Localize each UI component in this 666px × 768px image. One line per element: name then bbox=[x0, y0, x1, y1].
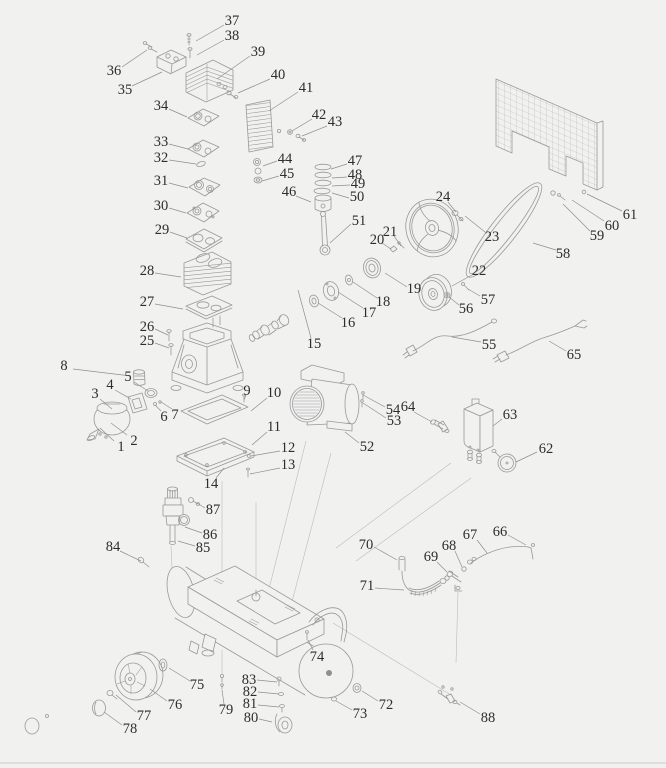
leader-line-18 bbox=[353, 282, 377, 298]
part-label-79: 79 bbox=[219, 702, 234, 718]
leader-line-10 bbox=[251, 398, 267, 411]
leader-line-23 bbox=[465, 216, 485, 232]
platform-bolts bbox=[220, 674, 223, 689]
leader-line-53 bbox=[363, 403, 386, 418]
leader-line-38 bbox=[197, 40, 224, 55]
part-label-37: 37 bbox=[225, 13, 240, 29]
leader-line-83 bbox=[257, 680, 277, 682]
leader-line-15 bbox=[298, 290, 311, 338]
part-label-34: 34 bbox=[154, 98, 169, 114]
leader-line-45 bbox=[262, 176, 279, 181]
part-label-43: 43 bbox=[328, 114, 343, 130]
part-label-54: 54 bbox=[386, 402, 401, 418]
part-label-9: 9 bbox=[243, 383, 250, 399]
unloader-screws bbox=[143, 42, 157, 52]
leader-line-81 bbox=[258, 705, 279, 707]
finned-aftercooler bbox=[244, 100, 281, 152]
part-label-23: 23 bbox=[485, 229, 500, 245]
leader-line-56 bbox=[449, 297, 459, 305]
part-label-38: 38 bbox=[225, 28, 240, 44]
part-label-11: 11 bbox=[267, 419, 281, 435]
valve-plate-d bbox=[187, 203, 219, 222]
leader-line-86 bbox=[185, 527, 202, 533]
leader-line-47 bbox=[331, 164, 347, 169]
leader-line-37 bbox=[196, 25, 224, 41]
axle-bolt bbox=[107, 691, 117, 700]
crankcase bbox=[171, 316, 243, 393]
crankcase-gasket bbox=[181, 395, 248, 424]
leader-line-88 bbox=[460, 702, 480, 714]
part-label-21: 21 bbox=[383, 224, 398, 240]
leader-line-4 bbox=[115, 390, 131, 399]
part-label-84: 84 bbox=[106, 539, 121, 555]
part-label-16: 16 bbox=[341, 315, 356, 331]
part-label-4: 4 bbox=[106, 377, 114, 393]
cylinder-gasket bbox=[186, 296, 232, 319]
leader-line-28 bbox=[155, 273, 181, 277]
part-label-87: 87 bbox=[206, 502, 221, 518]
valve-plate-c bbox=[189, 178, 220, 196]
part-label-78: 78 bbox=[123, 721, 138, 737]
base-plate bbox=[177, 438, 254, 476]
part-label-1: 1 bbox=[117, 439, 124, 455]
leader-line-44 bbox=[263, 161, 277, 166]
leader-line-40 bbox=[238, 79, 270, 93]
leader-line-34 bbox=[169, 109, 187, 117]
part-label-15: 15 bbox=[307, 336, 322, 352]
leader-line-84 bbox=[120, 551, 141, 561]
leader-line-66 bbox=[508, 535, 526, 545]
crankshaft bbox=[248, 313, 290, 342]
bearing-flange bbox=[321, 280, 340, 302]
leader-line-49 bbox=[332, 185, 350, 186]
part-label-60: 60 bbox=[605, 218, 620, 234]
part-label-80: 80 bbox=[244, 710, 259, 726]
leader-line-71 bbox=[375, 588, 404, 590]
leader-line-5 bbox=[134, 382, 148, 391]
switch-nipple bbox=[430, 419, 449, 432]
part-label-13: 13 bbox=[281, 457, 296, 473]
leader-line-46 bbox=[296, 196, 311, 202]
part-label-77: 77 bbox=[137, 708, 152, 724]
pressure-gauge bbox=[492, 450, 516, 473]
leader-line-64 bbox=[414, 412, 432, 422]
reed-valve bbox=[196, 160, 206, 167]
construction-line-7 bbox=[288, 453, 331, 617]
part-label-29: 29 bbox=[155, 222, 170, 238]
part-label-26: 26 bbox=[140, 319, 155, 335]
part-label-66: 66 bbox=[493, 524, 508, 540]
part-label-62: 62 bbox=[539, 441, 554, 457]
leader-line-73 bbox=[336, 701, 352, 710]
part-label-3: 3 bbox=[91, 386, 98, 402]
leader-line-17 bbox=[338, 292, 363, 308]
leader-line-52 bbox=[345, 432, 359, 443]
part-label-67: 67 bbox=[463, 527, 478, 543]
part-label-70: 70 bbox=[359, 537, 374, 553]
part-label-51: 51 bbox=[352, 213, 367, 229]
part-label-42: 42 bbox=[312, 107, 327, 123]
leader-line-27 bbox=[155, 304, 183, 309]
valve-plate-b bbox=[188, 140, 219, 157]
leader-line-13 bbox=[250, 468, 280, 474]
leader-line-19 bbox=[385, 273, 407, 287]
leader-line-67 bbox=[477, 540, 487, 553]
leader-line-58 bbox=[533, 243, 556, 250]
leader-line-65 bbox=[549, 341, 566, 351]
valve-plate-a bbox=[188, 109, 219, 126]
leader-line-70 bbox=[374, 547, 397, 560]
leader-line-69 bbox=[437, 562, 447, 572]
cylinder-head bbox=[184, 60, 235, 102]
part-label-88: 88 bbox=[481, 710, 496, 726]
leader-line-41 bbox=[269, 92, 298, 111]
construction-line-2 bbox=[333, 623, 451, 695]
leader-line-36 bbox=[122, 50, 147, 67]
part-label-72: 72 bbox=[379, 697, 394, 713]
flywheel bbox=[399, 193, 464, 262]
part-label-74: 74 bbox=[310, 649, 325, 665]
part-label-59: 59 bbox=[590, 228, 605, 244]
crankcase-screws bbox=[167, 330, 173, 355]
part-label-7: 7 bbox=[171, 407, 178, 423]
compression-fittings bbox=[254, 159, 263, 184]
part-label-18: 18 bbox=[376, 294, 391, 310]
end-cap bbox=[25, 715, 49, 735]
leader-line-48 bbox=[332, 177, 347, 178]
exploded-parts-diagram: 1234567891011121314151617181920212223242… bbox=[0, 0, 666, 768]
leader-line-55 bbox=[452, 337, 481, 342]
part-label-40: 40 bbox=[271, 67, 286, 83]
leader-line-63 bbox=[493, 419, 502, 426]
part-label-12: 12 bbox=[281, 440, 296, 456]
hub-cap bbox=[93, 700, 106, 716]
intake-screws bbox=[154, 401, 162, 406]
leader-line-51 bbox=[330, 224, 351, 243]
construction-line-8 bbox=[171, 546, 172, 569]
part-label-75: 75 bbox=[190, 677, 205, 693]
part-label-19: 19 bbox=[407, 281, 422, 297]
connecting-rod bbox=[320, 212, 330, 256]
part-label-83: 83 bbox=[242, 672, 257, 688]
part-label-35: 35 bbox=[118, 82, 133, 98]
part-label-57: 57 bbox=[481, 292, 496, 308]
leader-line-57 bbox=[468, 289, 480, 296]
part-label-28: 28 bbox=[140, 263, 155, 279]
leader-line-42 bbox=[292, 119, 312, 131]
pressure-switch bbox=[464, 399, 493, 464]
part-label-33: 33 bbox=[154, 134, 169, 150]
outlet-pipe bbox=[468, 544, 535, 565]
piston bbox=[315, 195, 331, 212]
head-screws bbox=[187, 34, 192, 58]
part-label-17: 17 bbox=[362, 305, 377, 321]
leader-line-78 bbox=[104, 712, 122, 725]
part-label-41: 41 bbox=[299, 80, 314, 96]
leader-line-62 bbox=[516, 452, 537, 462]
part-label-27: 27 bbox=[140, 294, 155, 310]
part-label-68: 68 bbox=[442, 538, 457, 554]
part-label-64: 64 bbox=[401, 399, 416, 415]
belt-guard-screws bbox=[551, 190, 586, 200]
head-gasket bbox=[186, 229, 222, 252]
leader-line-33 bbox=[169, 144, 188, 149]
part-label-8: 8 bbox=[60, 358, 67, 374]
unloader-valve-block bbox=[157, 50, 186, 74]
crank-washer bbox=[308, 294, 320, 308]
leader-line-43 bbox=[302, 126, 327, 136]
part-label-61: 61 bbox=[623, 207, 638, 223]
leader-line-12 bbox=[251, 451, 280, 456]
leader-line-61 bbox=[587, 194, 622, 211]
part-label-46: 46 bbox=[282, 184, 297, 200]
part-label-63: 63 bbox=[503, 407, 518, 423]
motor-screws bbox=[361, 392, 365, 407]
electric-motor bbox=[290, 365, 359, 431]
spacer-washer bbox=[344, 274, 353, 285]
regulator bbox=[163, 487, 190, 545]
leader-line-30 bbox=[169, 208, 186, 213]
part-label-65: 65 bbox=[567, 347, 582, 363]
leader-line-29 bbox=[170, 232, 187, 238]
tank-bolt bbox=[137, 556, 149, 567]
leader-line-26 bbox=[155, 329, 168, 335]
leader-line-50 bbox=[332, 193, 349, 198]
part-label-69: 69 bbox=[424, 549, 439, 565]
leader-line-11 bbox=[252, 432, 267, 445]
cylinder-block bbox=[182, 252, 233, 295]
part-label-2: 2 bbox=[130, 433, 137, 449]
part-label-30: 30 bbox=[154, 198, 169, 214]
leader-line-32 bbox=[169, 160, 196, 164]
part-label-73: 73 bbox=[353, 706, 368, 722]
belt-guard bbox=[496, 79, 603, 190]
part-label-5: 5 bbox=[124, 369, 131, 385]
leader-line-8 bbox=[73, 369, 131, 376]
part-label-76: 76 bbox=[168, 697, 183, 713]
leader-line-59 bbox=[563, 204, 590, 231]
part-label-36: 36 bbox=[107, 63, 122, 79]
intake-flange bbox=[128, 393, 147, 413]
leader-line-82 bbox=[258, 692, 279, 694]
pulley-key-and-screw bbox=[390, 242, 404, 252]
part-label-31: 31 bbox=[154, 173, 169, 189]
part-label-22: 22 bbox=[472, 263, 487, 279]
regulator-fitting bbox=[189, 498, 200, 506]
part-label-6: 6 bbox=[160, 409, 167, 425]
part-label-52: 52 bbox=[360, 439, 375, 455]
leader-line-75 bbox=[169, 668, 190, 681]
construction-line-9 bbox=[336, 463, 451, 548]
ball-bearing bbox=[361, 256, 383, 280]
part-label-14: 14 bbox=[204, 476, 219, 492]
piston-rings bbox=[314, 164, 331, 194]
leader-line-72 bbox=[362, 691, 378, 701]
part-label-44: 44 bbox=[278, 151, 293, 167]
leader-line-85 bbox=[178, 541, 195, 546]
leader-line-22 bbox=[452, 275, 472, 286]
part-label-32: 32 bbox=[154, 150, 169, 166]
tank-legs bbox=[189, 634, 216, 656]
part-label-58: 58 bbox=[556, 246, 571, 262]
leader-line-31 bbox=[169, 183, 188, 188]
part-label-50: 50 bbox=[350, 189, 365, 205]
diagram-canvas: 1234567891011121314151617181920212223242… bbox=[0, 0, 666, 768]
part-label-71: 71 bbox=[360, 578, 375, 594]
part-label-39: 39 bbox=[251, 44, 266, 60]
part-label-55: 55 bbox=[482, 337, 497, 353]
leader-line-80 bbox=[259, 719, 272, 722]
part-label-56: 56 bbox=[459, 301, 474, 317]
part-label-10: 10 bbox=[267, 385, 282, 401]
leader-line-16 bbox=[318, 303, 342, 318]
part-label-86: 86 bbox=[203, 527, 218, 543]
construction-line-1 bbox=[456, 592, 458, 663]
leader-line-7 bbox=[161, 402, 172, 409]
part-label-25: 25 bbox=[140, 333, 155, 349]
part-label-45: 45 bbox=[280, 166, 295, 182]
leader-line-25 bbox=[155, 343, 169, 348]
part-label-24: 24 bbox=[436, 189, 451, 205]
leader-line-35 bbox=[132, 72, 162, 86]
